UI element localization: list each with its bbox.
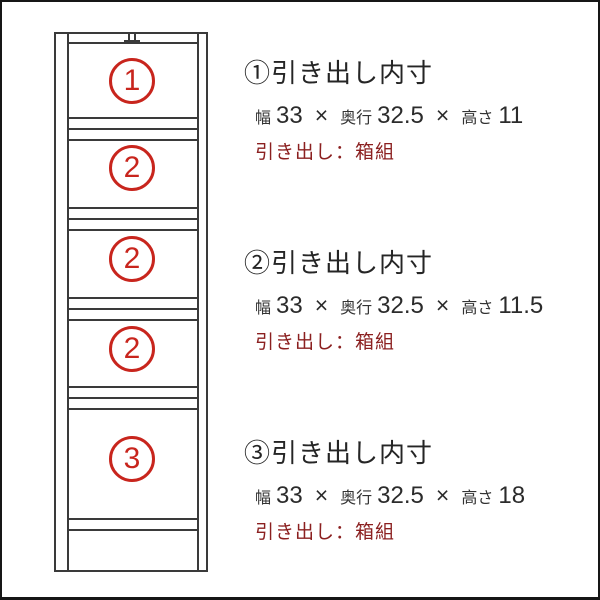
height-value: 18 [498,482,525,509]
drawer-construction-note: 引き出し：箱組 [255,333,543,352]
spec-dimensions: 幅33×奥行32.5×高さ11 [255,104,523,128]
divider-line [67,297,199,299]
drawer-number-badge-3: 2 [109,236,155,282]
divider-line [67,408,199,410]
spec-block-drawer-2: ②引き出し内寸 幅33×奥行32.5×高さ11.5 引き出し：箱組 [244,250,543,352]
divider-line [67,139,199,141]
multiply-sign: × [315,102,328,128]
cabinet-right-inner-line [197,34,199,570]
drawer-construction-note: 引き出し：箱組 [255,523,525,542]
multiply-sign: × [436,482,449,508]
multiply-sign: × [436,292,449,318]
spec-heading: ①引き出し内寸 [244,60,523,86]
depth-label: 奥行 [340,110,372,127]
depth-value: 32.5 [377,482,424,509]
spec-heading: ②引き出し内寸 [244,250,543,276]
drawer-number-badge-1: 1 [109,58,155,104]
drawer-number-badge-5: 3 [109,436,155,482]
cabinet-top-board-line [67,42,199,44]
divider-line [67,308,199,310]
drawer-number-badge-4: 2 [109,326,155,372]
width-value: 33 [276,482,303,509]
height-value: 11 [498,102,523,129]
spec-dimensions: 幅33×奥行32.5×高さ18 [255,484,525,508]
spec-dimensions: 幅33×奥行32.5×高さ11.5 [255,294,543,318]
multiply-sign: × [315,482,328,508]
depth-value: 32.5 [377,292,424,319]
height-label: 高さ [461,490,493,507]
cabinet-outline [54,32,208,572]
product-dimension-figure: 1 2 2 2 3 ①引き出し内寸 幅33×奥行32.5×高さ11 引き出し：箱… [0,0,600,600]
divider-line [67,529,199,531]
depth-label: 奥行 [340,300,372,317]
multiply-sign: × [315,292,328,318]
cabinet-left-inner-line [67,34,69,570]
divider-line [67,207,199,209]
multiply-sign: × [436,102,449,128]
divider-line [67,386,199,388]
divider-line [67,319,199,321]
divider-line [67,518,199,520]
spec-block-drawer-1: ①引き出し内寸 幅33×奥行32.5×高さ11 引き出し：箱組 [244,60,523,162]
divider-line [67,117,199,119]
drawer-number-badge-2: 2 [109,145,155,191]
divider-line [67,128,199,130]
divider-line [67,397,199,399]
width-label: 幅 [255,300,271,317]
drawer-construction-note: 引き出し：箱組 [255,143,523,162]
height-label: 高さ [461,300,493,317]
spec-block-drawer-3: ③引き出し内寸 幅33×奥行32.5×高さ18 引き出し：箱組 [244,440,525,542]
width-value: 33 [276,292,303,319]
divider-line [67,218,199,220]
spec-heading: ③引き出し内寸 [244,440,525,466]
width-value: 33 [276,102,303,129]
depth-value: 32.5 [377,102,424,129]
width-label: 幅 [255,490,271,507]
divider-line [67,229,199,231]
width-label: 幅 [255,110,271,127]
top-pin-base-line [124,40,140,42]
depth-label: 奥行 [340,490,372,507]
height-label: 高さ [461,110,493,127]
height-value: 11.5 [498,292,543,319]
